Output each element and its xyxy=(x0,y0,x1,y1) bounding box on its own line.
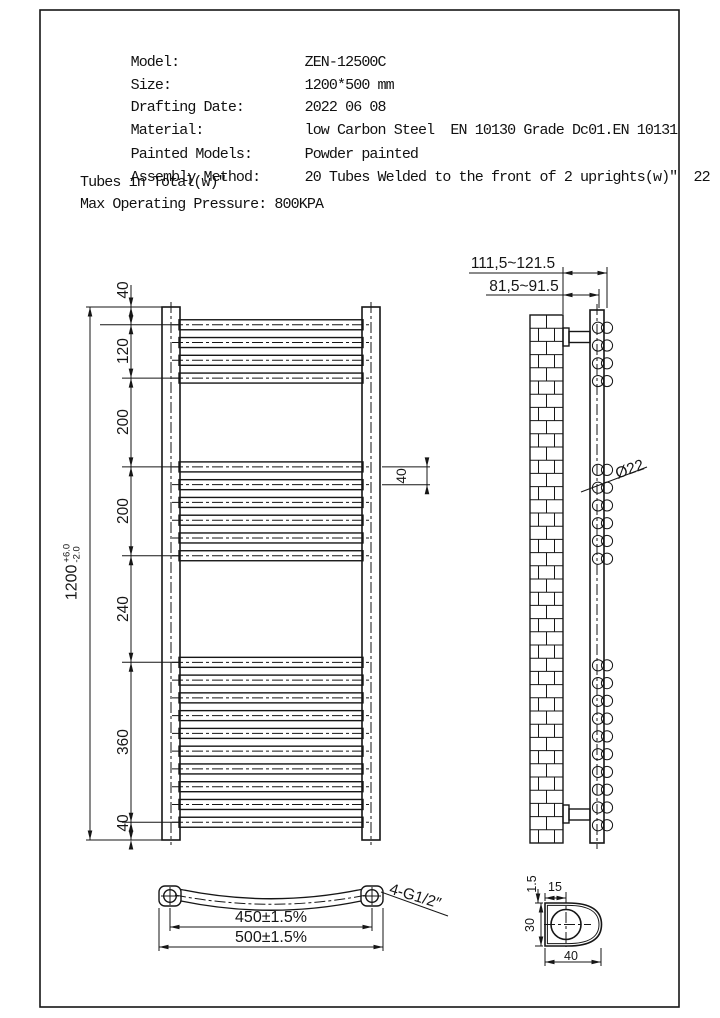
tube-rungs xyxy=(172,320,370,827)
tolerance-minus: -2.0 xyxy=(72,544,82,563)
profile-offset-dim-label: 15 xyxy=(548,880,562,894)
chain-dim-label: 40 xyxy=(115,281,133,298)
wall-bracket-top xyxy=(563,328,590,346)
end-cap-right xyxy=(361,886,383,906)
profile-width-dim-label: 40 xyxy=(564,949,578,963)
chain-dim-label: 360 xyxy=(115,729,133,755)
wall-to-front-dim-label: 111,5~121.5 xyxy=(471,255,555,273)
curved-tube-centerline xyxy=(175,895,367,904)
chain-dim-label: 120 xyxy=(115,338,133,364)
overall-height-dim-label: 1200+6.0-2.0 xyxy=(63,544,82,600)
overall-width-dim-label: 500±1.5% xyxy=(235,929,307,947)
dimension-arrowheads xyxy=(88,271,607,965)
curved-tube-top-edge xyxy=(181,890,361,899)
wall-to-back-dim-label: 81,5~91.5 xyxy=(489,278,558,296)
chain-dim-label: 40 xyxy=(115,814,133,831)
brick-pattern xyxy=(530,315,563,843)
chain-dim-label: 200 xyxy=(115,409,133,435)
spec-assembly-overflow: Tubes in Total(w)″ xyxy=(80,174,226,191)
chain-dim-label: 200 xyxy=(115,498,133,524)
overall-height-value: 1200 xyxy=(63,565,81,601)
spec-value: 20 Tubes Welded to the front of 2 uprigh… xyxy=(305,169,710,186)
tube-centers-dim-label: 450±1.5% xyxy=(235,909,307,927)
side-view-linework xyxy=(530,304,613,849)
bottom-plan-view xyxy=(159,886,383,910)
profile-detail xyxy=(544,892,602,947)
profile-height-dim-label: 30 xyxy=(523,918,537,932)
end-cap-left xyxy=(159,886,181,906)
wall-bracket-bottom xyxy=(563,805,590,823)
spec-pressure-line: Max Operating Pressure: 800KPA xyxy=(80,196,323,213)
technical-drawing-page: Model:ZEN-12500C Size:1200*500 mm Drafti… xyxy=(0,0,720,1018)
chain-dim-label: 240 xyxy=(115,596,133,622)
side-tube-sections xyxy=(592,322,612,831)
front-view-linework xyxy=(162,302,380,845)
profile-wall-dim-label: 1.5 xyxy=(525,875,539,892)
tube-gap-dim-label: 40 xyxy=(393,468,409,484)
